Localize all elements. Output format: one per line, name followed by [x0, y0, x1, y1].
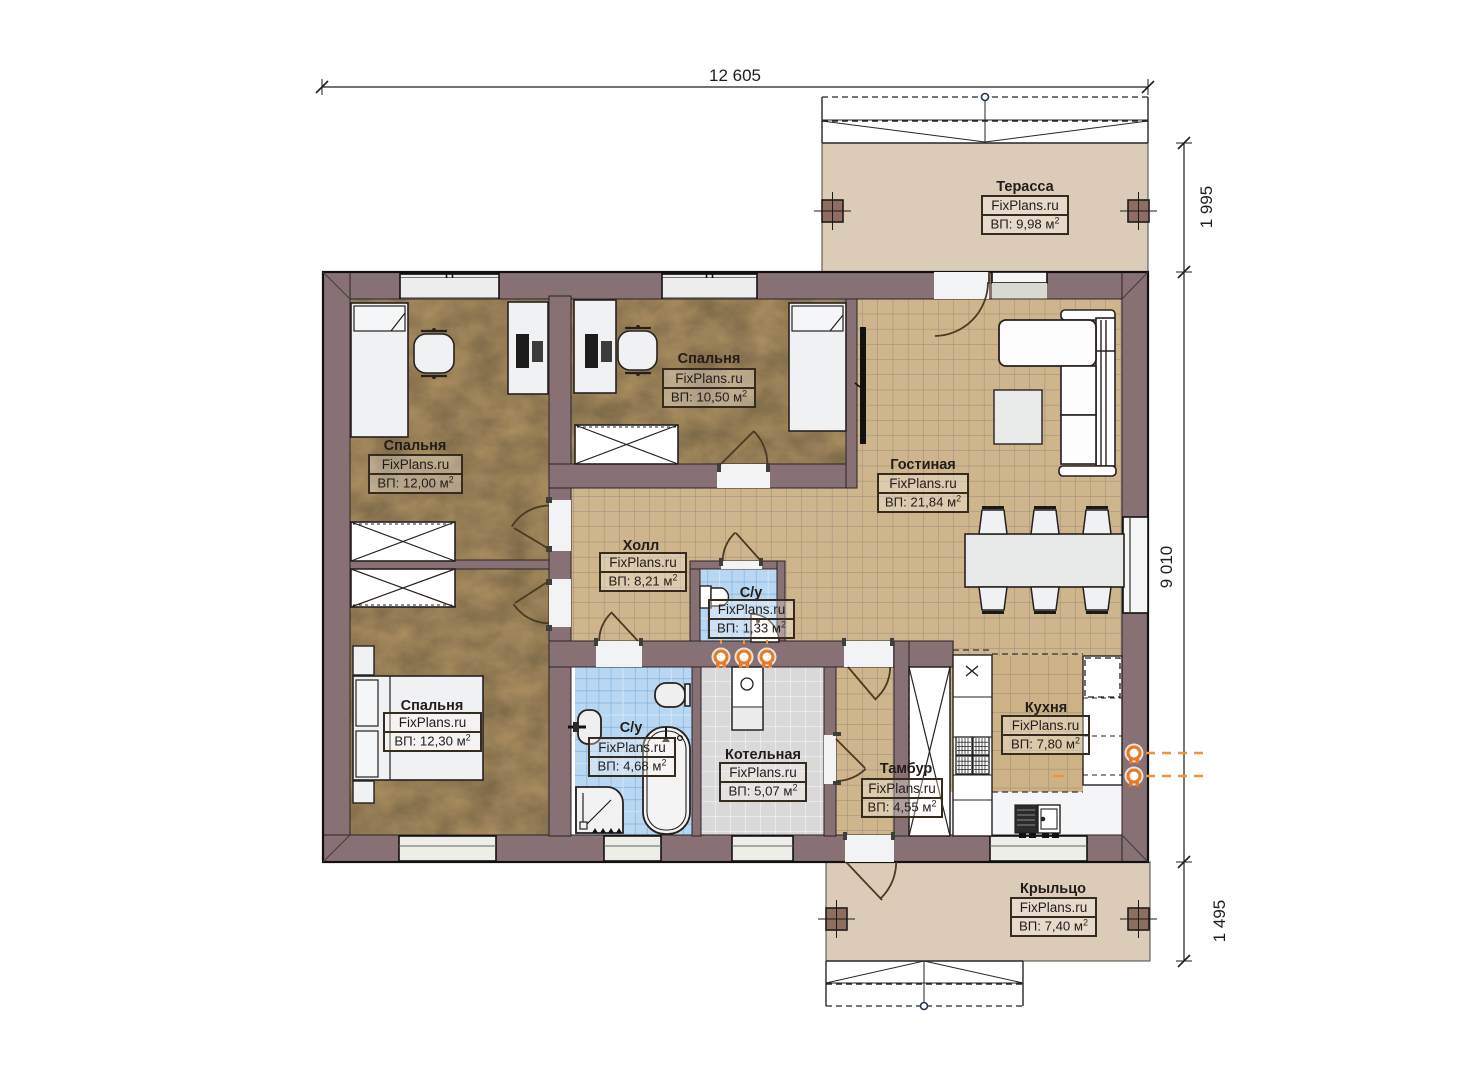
svg-text:Крыльцо: Крыльцо — [1020, 881, 1086, 897]
svg-text:Спальня: Спальня — [401, 698, 464, 714]
svg-text:ВП: 5,07 м2: ВП: 5,07 м2 — [728, 783, 797, 799]
svg-text:Терасса: Терасса — [996, 179, 1054, 195]
svg-text:FixPlans.ru: FixPlans.ru — [729, 765, 797, 780]
svg-text:FixPlans.ru: FixPlans.ru — [1012, 718, 1080, 733]
svg-text:FixPlans.ru: FixPlans.ru — [889, 476, 957, 491]
svg-text:1 495: 1 495 — [1210, 900, 1229, 943]
svg-text:ВП: 7,40 м2: ВП: 7,40 м2 — [1019, 918, 1088, 934]
svg-text:Спальня: Спальня — [384, 438, 447, 454]
svg-text:FixPlans.ru: FixPlans.ru — [991, 198, 1059, 213]
svg-text:Холл: Холл — [623, 538, 659, 554]
svg-text:ВП: 12,30 м2: ВП: 12,30 м2 — [394, 733, 470, 749]
svg-text:FixPlans.ru: FixPlans.ru — [675, 371, 743, 386]
svg-text:ВП: 10,50 м2: ВП: 10,50 м2 — [671, 389, 747, 405]
svg-text:Кухня: Кухня — [1025, 700, 1067, 716]
svg-text:FixPlans.ru: FixPlans.ru — [718, 602, 786, 617]
svg-text:Спальня: Спальня — [678, 351, 741, 367]
svg-text:ВП: 4,68 м2: ВП: 4,68 м2 — [597, 758, 666, 774]
svg-text:9 010: 9 010 — [1157, 546, 1176, 589]
svg-text:Гостиная: Гостиная — [890, 457, 956, 473]
svg-text:ВП: 7,80 м2: ВП: 7,80 м2 — [1011, 736, 1080, 752]
svg-text:FixPlans.ru: FixPlans.ru — [609, 555, 677, 570]
svg-text:FixPlans.ru: FixPlans.ru — [1020, 900, 1088, 915]
svg-text:1 995: 1 995 — [1197, 186, 1216, 229]
svg-text:FixPlans.ru: FixPlans.ru — [399, 715, 467, 730]
svg-text:Котельная: Котельная — [725, 747, 801, 763]
svg-text:С/у: С/у — [620, 720, 643, 736]
svg-text:ВП: 8,21 м2: ВП: 8,21 м2 — [608, 573, 677, 589]
svg-text:FixPlans.ru: FixPlans.ru — [868, 781, 936, 796]
svg-text:ВП: 9,98 м2: ВП: 9,98 м2 — [990, 216, 1059, 232]
svg-text:ВП: 12,00 м2: ВП: 12,00 м2 — [377, 475, 453, 491]
svg-text:ВП: 4,55 м2: ВП: 4,55 м2 — [867, 799, 936, 815]
svg-text:Тамбур: Тамбур — [880, 761, 933, 777]
svg-text:12 605: 12 605 — [709, 66, 761, 85]
svg-text:FixPlans.ru: FixPlans.ru — [382, 457, 450, 472]
svg-text:ВП: 21,84 м2: ВП: 21,84 м2 — [885, 494, 961, 510]
svg-text:С/у: С/у — [740, 585, 763, 601]
svg-text:ВП: 1,33 м2: ВП: 1,33 м2 — [717, 620, 786, 636]
svg-text:FixPlans.ru: FixPlans.ru — [598, 740, 666, 755]
